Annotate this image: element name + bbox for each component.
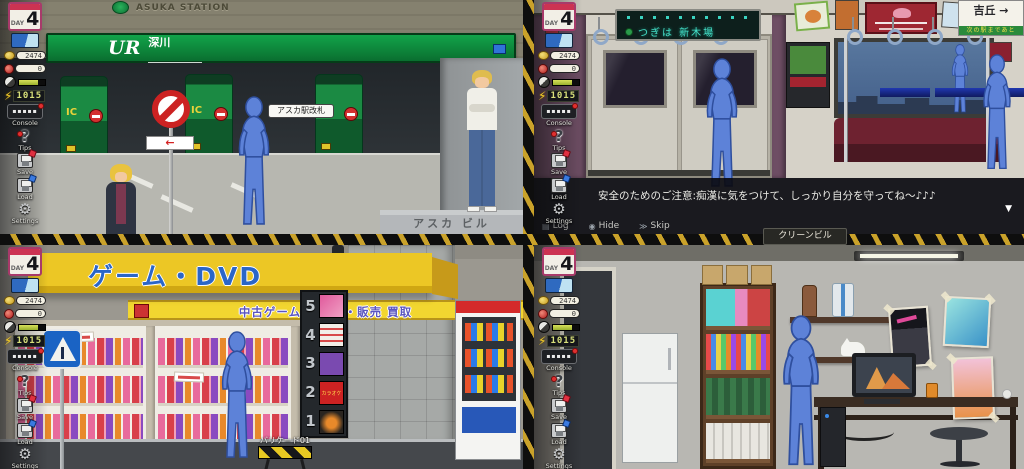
next-station-sign: 吉丘 → 次の駅まであと (958, 0, 1024, 36)
npc-top (116, 184, 126, 224)
screen-content-green (790, 46, 826, 74)
line-symbol-icon (625, 28, 633, 36)
coin-icon (4, 51, 15, 60)
lightning-icon: ⚡ (538, 335, 546, 347)
console-button[interactable]: ▪▪▪▪▪ Console (7, 104, 43, 127)
npc-crossed-arms (469, 104, 495, 112)
led-text: つぎは 新木場 (638, 24, 715, 39)
settings-button[interactable]: ⚙ Settings (546, 202, 573, 225)
npc-blonde-woman[interactable] (96, 164, 148, 234)
poster-pink-text (897, 315, 917, 324)
door-side-screen (786, 42, 830, 108)
settings-label: Settings (546, 218, 573, 225)
gem-icon (538, 64, 548, 74)
barricade[interactable] (258, 446, 312, 459)
hide-button[interactable]: ◉ Hide (589, 221, 620, 231)
hand-strap (598, 17, 600, 30)
load-button[interactable]: Load (17, 178, 33, 201)
sale-tag (134, 304, 149, 318)
gate-tag (321, 143, 331, 150)
mannequin-resident[interactable] (772, 315, 830, 469)
tape-corner (946, 353, 957, 364)
building-nameplate: クリーンビル (763, 228, 847, 245)
sign-blue-plate (493, 44, 506, 54)
gem-icon (538, 309, 548, 319)
time-of-day-icon (545, 33, 573, 48)
load-button[interactable]: Load (17, 423, 33, 446)
floor-ad-pink (319, 294, 344, 318)
save-button[interactable]: Save (551, 153, 567, 176)
next-station-text: 吉丘 → (959, 1, 1023, 21)
floor-marking (160, 194, 193, 212)
question-icon: ? (21, 129, 30, 144)
floppy-save-icon (551, 153, 567, 168)
floor-ad-white (319, 323, 344, 347)
monitor-screen (856, 357, 912, 393)
station-name: 深川 (148, 36, 170, 49)
floor-number: 4 (304, 328, 317, 343)
console-icon: ▪▪▪▪▪ (541, 104, 577, 119)
lightning-icon: ⚡ (538, 90, 546, 102)
gate-tooltip: アスカ駅改札 (268, 104, 334, 118)
tips-button[interactable]: ? Tips (552, 129, 565, 152)
coin-count: 2474 (550, 296, 580, 305)
tips-button[interactable]: ? Tips (552, 374, 565, 397)
coin-icon (538, 296, 549, 305)
red-pin-icon (28, 149, 37, 158)
npc-blond-man[interactable] (458, 70, 506, 215)
console-dashes: ▪▪▪▪▪ (546, 353, 571, 360)
floor-number: 5 (304, 299, 317, 314)
station-wall-text: ASUKA STATION (136, 3, 230, 13)
notification-dot (38, 103, 44, 109)
stamina-meter (538, 321, 580, 333)
scene-train-interior: つぎは 新木場 吉丘 → 次の駅まであと (534, 0, 1024, 234)
floppy-load-icon (17, 423, 33, 438)
barricade-label: バリケード01 (240, 435, 330, 446)
floor-guide-row: 1 (302, 407, 346, 436)
floor-ad-karaoke: カラオケ館 (319, 381, 344, 405)
stamina-fill (19, 325, 38, 330)
coin-counter: 2474 (4, 295, 46, 306)
stamina-bar (552, 324, 580, 331)
coin-count: 2474 (16, 296, 46, 305)
hide-label: Hide (599, 221, 620, 231)
floppy-save-icon (17, 153, 33, 168)
ad-poster-orange (835, 0, 859, 30)
floor-guide-row: 2 カラオケ館 (302, 378, 346, 407)
skip-icon: ≫ (639, 222, 647, 231)
console-dashes: ▪▪▪▪▪ (12, 353, 37, 360)
settings-button[interactable]: ⚙ Settings (546, 447, 573, 469)
day-label: DAY (11, 20, 24, 27)
train-window (834, 38, 994, 118)
hand-strap (852, 17, 854, 30)
gem-count: 0 (549, 309, 580, 318)
stamina-meter (4, 76, 46, 88)
day-value: 4 (560, 11, 573, 27)
floor-guide-row: 5 (302, 292, 346, 321)
console-button[interactable]: ▪▪▪▪▪ Console (7, 349, 43, 372)
settings-button[interactable]: ⚙ Settings (12, 202, 39, 225)
day-card: DAY 4 (542, 2, 576, 31)
ad-text-line (875, 22, 927, 24)
pedestrian-crossing-sign (42, 329, 82, 369)
gem-icon (4, 309, 14, 319)
console-icon: ▪▪▪▪▪ (541, 349, 577, 364)
save-button[interactable]: Save (17, 398, 33, 421)
settings-label: Settings (12, 463, 39, 469)
floor-guide-row: 3 (302, 350, 346, 379)
gem-count: 0 (549, 64, 580, 73)
hazard-divider-horizontal (0, 234, 1024, 245)
vending-lower-panel (462, 407, 516, 433)
day-card: DAY 4 (542, 247, 576, 276)
vending-display (462, 317, 516, 401)
console-dashes: ▪▪▪▪▪ (546, 108, 571, 115)
scene-room-interior: DAY 4 2474 0 ⚡ 1015 ▪▪▪▪▪ Console ? Tips (534, 245, 1024, 469)
blue-pin-icon (28, 419, 37, 428)
drink-row (465, 323, 513, 341)
coin-counter: 2474 (538, 50, 580, 61)
stamina-icon (4, 76, 16, 88)
poster-orange-girl (951, 356, 995, 419)
lightning-icon: ⚡ (4, 335, 12, 347)
save-button[interactable]: Save (551, 398, 567, 421)
floor-number: 3 (304, 356, 317, 371)
npc-jeans (469, 130, 495, 206)
coin-counter: 2474 (538, 295, 580, 306)
shop-awning: ゲーム・DVD (28, 253, 432, 293)
gem-counter: 0 (4, 308, 46, 319)
figurine-mech (832, 283, 854, 317)
energy-count: 1015 (547, 90, 579, 102)
mannequin-passenger[interactable] (694, 58, 750, 190)
coin-count: 2474 (550, 51, 580, 60)
hand-strap (892, 17, 894, 30)
train-pillar (772, 15, 786, 178)
question-icon: ? (21, 374, 30, 389)
notification-dot (572, 103, 578, 109)
scene-game-shop: ゲーム・DVD 中古ゲーム・DVD・販売 買取 5 (0, 245, 523, 469)
console-icon: ▪▪▪▪▪ (7, 104, 43, 119)
floor-guide-sign: 5 4 3 2 カラオケ館 1 (300, 290, 348, 438)
desk-leg (1010, 405, 1016, 469)
desk[interactable] (814, 397, 1018, 407)
stamina-bar (18, 324, 46, 331)
settings-label: Settings (546, 463, 573, 469)
stamina-fill (553, 80, 572, 85)
hud-panel: DAY 4 2474 0 ⚡ 1015 ▪▪▪▪▪ Console ? Tips (3, 2, 47, 225)
tips-button[interactable]: ? Tips (18, 374, 31, 397)
hud-panel: DAY 4 2474 0 ⚡ 1015 ▪▪▪▪▪ Console ? Tips (537, 247, 581, 469)
drink-row (465, 349, 513, 367)
skip-label: Skip (651, 221, 670, 231)
load-button[interactable]: Load (551, 423, 567, 446)
day-label: DAY (11, 265, 24, 272)
lcd-strip (880, 88, 930, 97)
floppy-load-icon (551, 178, 567, 193)
led-route-dots (627, 16, 749, 19)
door-panel-left (591, 39, 678, 173)
gem-counter: 0 (538, 63, 580, 74)
tape-corner (988, 412, 999, 423)
no-entry-sign (152, 90, 190, 128)
next-station-sub: 次の駅まであと (959, 26, 1023, 35)
floor-number: 2 (304, 385, 317, 400)
wallpaper-mountain (882, 373, 910, 389)
day-value: 4 (26, 11, 39, 27)
ic-label: IC (66, 107, 77, 118)
floppy-save-icon (17, 398, 33, 413)
book-spines-green (706, 378, 770, 419)
computer-monitor[interactable] (852, 353, 916, 397)
energy-counter: ⚡ 1015 (4, 90, 46, 102)
vending-header (456, 301, 520, 313)
day-value: 4 (26, 256, 39, 272)
crossing-figure (61, 347, 64, 359)
energy-counter: ⚡ 1015 (538, 90, 580, 102)
tape-corner (925, 359, 936, 370)
question-icon: ? (555, 374, 564, 389)
vending-machine[interactable] (455, 300, 521, 460)
blue-pin-icon (28, 174, 37, 183)
cardboard-boxes (702, 265, 772, 285)
door-window (603, 50, 667, 108)
stamina-fill (553, 325, 572, 330)
stamina-bar (552, 79, 580, 86)
left-arrow-plate: ← (146, 136, 194, 150)
notification-dot (572, 348, 578, 354)
tape-corner (941, 291, 952, 302)
day-card: DAY 4 (8, 247, 42, 276)
snack-jar (926, 383, 938, 398)
no-entry-indicator (344, 107, 358, 121)
notification-dot (551, 376, 557, 382)
npc-shoe (484, 206, 497, 212)
gear-icon: ⚙ (552, 447, 565, 462)
poster-teal-girl (943, 296, 992, 348)
ad-text-line (879, 28, 923, 30)
energy-count: 1015 (13, 90, 45, 102)
manga-spines (706, 334, 770, 375)
keyboard (864, 399, 900, 404)
ur-logo: UR (108, 39, 140, 58)
refrigerator[interactable] (622, 333, 678, 463)
bookshelf[interactable] (700, 283, 776, 469)
stamina-icon (4, 321, 16, 333)
console-dashes: ▪▪▪▪▪ (12, 108, 37, 115)
no-entry-indicator (89, 109, 103, 123)
day-value: 4 (560, 256, 573, 272)
floor-number: 1 (304, 414, 317, 429)
day-card: DAY 4 (8, 2, 42, 31)
stool-base (940, 461, 980, 467)
floppy-load-icon (17, 178, 33, 193)
npc-face (115, 172, 127, 182)
gem-counter: 0 (4, 63, 46, 74)
floor-guide-row: 4 (302, 321, 346, 350)
console-button[interactable]: ▪▪▪▪▪ Console (541, 104, 577, 127)
ic-label: IC (191, 105, 202, 116)
stamina-meter (538, 76, 580, 88)
tape-corner (883, 304, 894, 315)
stamina-bar (18, 79, 46, 86)
gear-icon: ⚙ (18, 202, 31, 217)
floor-ad-purple (319, 352, 344, 376)
coin-count: 2474 (16, 51, 46, 60)
skip-button[interactable]: ≫ Skip (639, 221, 670, 231)
stamina-icon (538, 321, 550, 333)
stool-column (956, 437, 962, 463)
station-logo-roundel (112, 1, 129, 14)
gate-tag (66, 145, 76, 152)
question-icon: ? (555, 129, 564, 144)
lightning-icon: ⚡ (4, 90, 12, 102)
day-label: DAY (545, 265, 558, 272)
shelf-sign (174, 371, 204, 382)
ceiling-light (854, 251, 964, 261)
dialog-text: 安全のためのご注意:痴漢に気をつけて、しっかり自分を守ってね〜♪♪♪ (598, 189, 998, 204)
ad-graphic (893, 8, 911, 18)
door-led-display: つぎは 新木場 (615, 9, 761, 41)
blue-pin-icon (562, 174, 571, 183)
gem-counter: 0 (538, 308, 580, 319)
npc-shoe (467, 206, 480, 212)
stamina-meter (4, 321, 46, 333)
ad-food-image (805, 9, 822, 23)
red-pin-icon (562, 394, 571, 403)
time-of-day-icon (11, 278, 39, 293)
save-button[interactable]: Save (17, 153, 33, 176)
road-sign-pole (60, 369, 64, 469)
floppy-load-icon (551, 423, 567, 438)
energy-count: 1015 (13, 335, 45, 347)
coin-icon (538, 51, 549, 60)
console-button[interactable]: ▪▪▪▪▪ Console (541, 349, 577, 372)
hide-icon: ◉ (589, 222, 596, 231)
time-of-day-icon (545, 278, 573, 293)
stamina-icon (538, 76, 550, 88)
ad-poster-food (794, 1, 830, 32)
drink-row (465, 375, 513, 393)
hud-panel: DAY 4 2474 0 ⚡ 1015 ▪▪▪▪▪ Console ? Tips (537, 2, 581, 225)
npc-face (475, 77, 489, 88)
notification-dot (551, 131, 557, 137)
dialog-box[interactable]: 安全のためのご注意:痴漢に気をつけて、しっかり自分を守ってね〜♪♪♪ ▼ ▤ L… (534, 178, 1024, 234)
energy-counter: ⚡ 1015 (4, 335, 46, 347)
notification-dot (38, 348, 44, 354)
store-post (291, 326, 300, 450)
figure-boxes (706, 289, 770, 330)
game-collage: ASUKA STATION UR 深川 IC IC IC (0, 0, 1024, 469)
floppy-save-icon (551, 398, 567, 413)
load-button[interactable]: Load (551, 178, 567, 201)
coin-counter: 2474 (4, 50, 46, 61)
gear-icon: ⚙ (552, 202, 565, 217)
scene-station-gate: ASUKA STATION UR 深川 IC IC IC (0, 0, 523, 234)
book-spines-white (706, 423, 770, 464)
white-ball (1002, 389, 1012, 399)
screen-content-red (790, 77, 826, 87)
settings-label: Settings (12, 218, 39, 225)
blue-pin-icon (562, 419, 571, 428)
day-label: DAY (545, 20, 558, 27)
ticket-gate: IC (60, 76, 108, 158)
time-of-day-icon (11, 33, 39, 48)
floor-ad-restaurant (319, 410, 344, 434)
red-pin-icon (562, 149, 571, 158)
handrail-pole (844, 38, 847, 162)
hud-panel: DAY 4 2474 0 ⚡ 1015 ▪▪▪▪▪ Console ? Tips (3, 247, 47, 469)
ad-poster-red-large (865, 2, 937, 34)
notification-dot (17, 376, 23, 382)
awning-text: ゲーム・DVD (88, 257, 262, 293)
tips-button[interactable]: ? Tips (18, 129, 31, 152)
figurine-brown (802, 285, 817, 317)
mannequin-passenger[interactable] (972, 54, 1022, 172)
stool[interactable] (930, 427, 988, 440)
gem-count: 0 (15, 64, 46, 73)
notification-dot (17, 131, 23, 137)
coin-icon (4, 296, 15, 305)
energy-counter: ⚡ 1015 (538, 335, 580, 347)
store-post (146, 326, 155, 450)
hand-strap (932, 17, 934, 30)
continue-indicator-icon: ▼ (1005, 204, 1012, 214)
gem-icon (4, 64, 14, 74)
tape-corner (985, 293, 996, 304)
gem-count: 0 (15, 309, 46, 318)
settings-button[interactable]: ⚙ Settings (12, 447, 39, 469)
gear-icon: ⚙ (18, 447, 31, 462)
red-pin-icon (28, 394, 37, 403)
energy-count: 1015 (547, 335, 579, 347)
console-icon: ▪▪▪▪▪ (7, 349, 43, 364)
stamina-fill (19, 80, 38, 85)
